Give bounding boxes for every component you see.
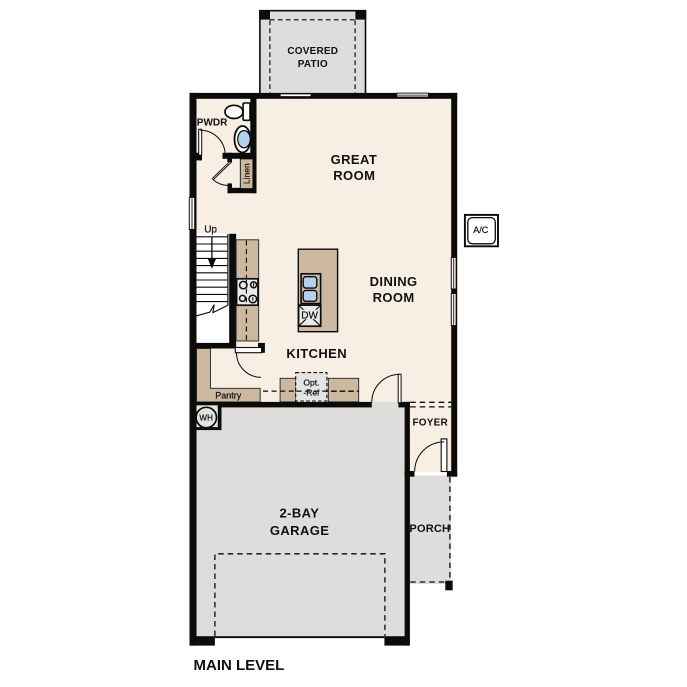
svg-text:DINING: DINING [370,274,418,289]
svg-text:Linen: Linen [242,163,252,184]
svg-text:GARAGE: GARAGE [270,523,329,538]
svg-text:COVERED: COVERED [287,46,338,57]
svg-text:Pantry: Pantry [215,390,242,400]
svg-text:Up: Up [204,224,217,235]
svg-text:KITCHEN: KITCHEN [286,346,347,361]
svg-text:DW: DW [301,310,318,321]
svg-text:PATIO: PATIO [298,59,328,70]
svg-text:FOYER: FOYER [412,418,448,429]
svg-text:PWDR: PWDR [197,117,228,128]
svg-text:PORCH: PORCH [409,523,450,535]
svg-text:ROOM: ROOM [373,290,415,305]
svg-text:-Ref: -Ref [303,387,320,397]
svg-text:MAIN LEVEL: MAIN LEVEL [194,657,285,674]
svg-text:Opt.: Opt. [303,378,319,388]
svg-text:A/C: A/C [473,225,489,235]
svg-text:GREAT: GREAT [331,152,378,167]
svg-text:2-BAY: 2-BAY [279,506,319,521]
svg-text:WH: WH [199,414,213,423]
svg-text:ROOM: ROOM [333,168,375,183]
